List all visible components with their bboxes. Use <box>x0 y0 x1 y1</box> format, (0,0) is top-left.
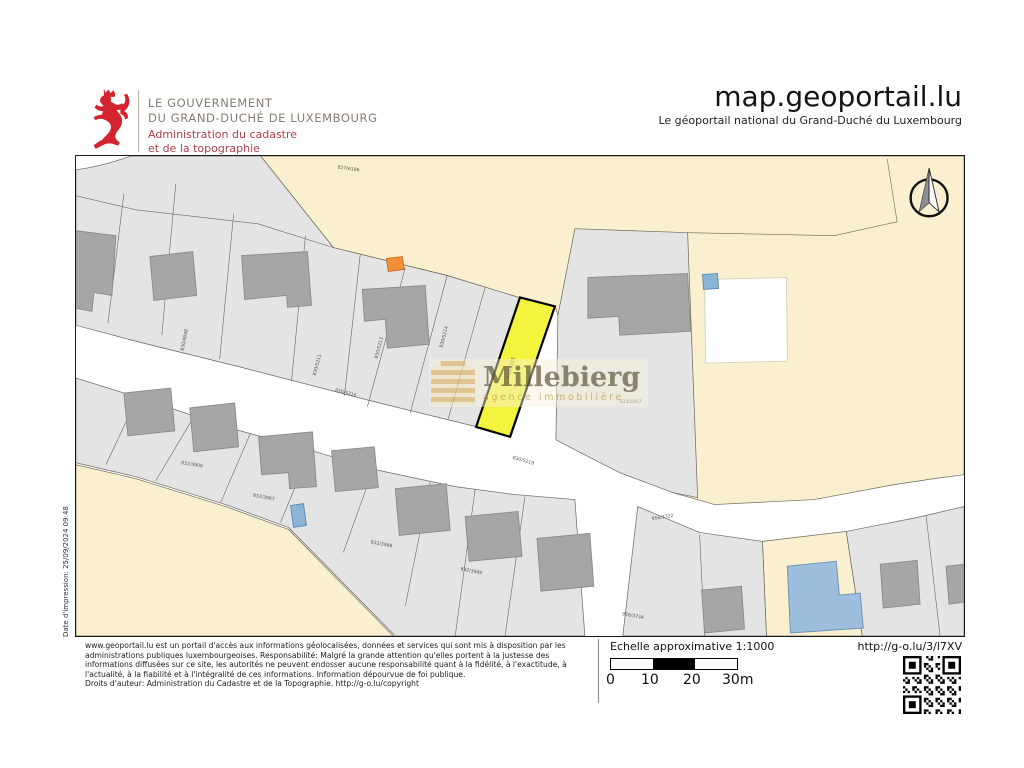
geoportail-print-page: LE GOUVERNEMENT DU GRAND-DUCHÉ DE LUXEMB… <box>0 0 1024 768</box>
scale-segment-white <box>611 659 653 669</box>
scale-tick: 20 <box>683 672 701 688</box>
administration-line1: Administration du cadastre <box>148 128 297 141</box>
small-blue-rect <box>291 504 307 528</box>
scale-tick: 30m <box>722 672 753 688</box>
footer-divider <box>598 639 599 703</box>
lion-body <box>94 94 125 146</box>
disclaimer-line: informations diffusées sur ce site, les … <box>85 660 597 670</box>
print-date-caption: Date d'impression: 25/09/2024 09:48 <box>62 506 70 637</box>
scale-tick: 10 <box>641 672 659 688</box>
gov-title-line2: DU GRAND-DUCHÉ DE LUXEMBOURG <box>148 111 378 125</box>
short-url-link[interactable]: http://g-o.lu/3/l7XV <box>858 640 962 653</box>
watermark-name: Millebierg <box>483 364 640 391</box>
scale-segment-black <box>653 659 695 669</box>
watermark-tagline: agence immobilière <box>483 392 640 403</box>
administration-line2: et de la topographie <box>148 142 260 155</box>
site-title: map.geoportail.lu <box>714 80 962 113</box>
scale-tick: 0 <box>606 672 615 688</box>
qr-code <box>903 656 961 714</box>
site-subtitle: Le géoportail national du Grand-Duché du… <box>658 114 962 127</box>
disclaimer-line: www.geoportail.lu est un portail d'accès… <box>85 641 597 651</box>
luxembourg-lion-logo-icon <box>90 86 136 150</box>
lion-tail <box>120 94 129 120</box>
scale-label: Echelle approximative 1:1000 <box>610 640 774 653</box>
disclaimer-line: administrations publiques luxembourgeois… <box>85 651 597 661</box>
header-divider <box>138 90 139 152</box>
watermark-text: Millebierg agence immobilière <box>483 364 640 403</box>
disclaimer-line: Droits d'auteur: Administration du Cadas… <box>85 679 597 689</box>
white-area <box>705 277 788 363</box>
scale-bar <box>610 658 738 670</box>
watermark: Millebierg agence immobilière <box>429 359 648 407</box>
scale-segment-white <box>695 659 737 669</box>
watermark-logo-icon <box>431 361 475 405</box>
disclaimer-line: l'actualité, à la fiabilité et à l'intég… <box>85 670 597 680</box>
gov-title-line1: LE GOUVERNEMENT <box>148 96 273 110</box>
small-blue-square <box>703 274 719 290</box>
small-orange-rect <box>386 257 404 272</box>
cadastral-map: 827/6186830/4848830/5211830/5213830/5214… <box>75 155 965 637</box>
disclaimer-text: www.geoportail.lu est un portail d'accès… <box>85 641 597 689</box>
